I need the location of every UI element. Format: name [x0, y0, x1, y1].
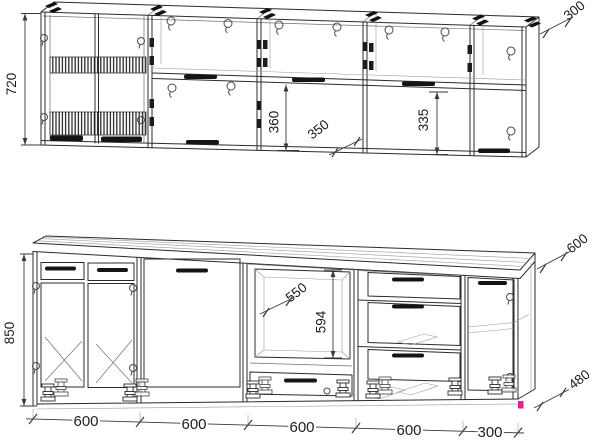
end-side-panel — [518, 262, 535, 400]
base-cabinets-drawing: 850 594 550 600 480 600 600 600 600 300 — [2, 231, 593, 441]
hinge-icons — [263, 40, 367, 69]
hinge-hole-icons — [507, 47, 515, 141]
dim-label-480: 480 — [566, 367, 593, 393]
flap-handle — [184, 75, 217, 80]
base-cabinet-2 — [144, 259, 240, 387]
base-cabinet-1 — [33, 263, 137, 388]
technical-drawing-canvas: 720 360 335 350 300 — [0, 0, 600, 447]
dim-label-upper-depth: 300 — [561, 0, 588, 23]
dim-label-base-height: 850 — [2, 322, 17, 345]
drawer-handle — [392, 354, 424, 358]
dim-label-350: 350 — [305, 117, 332, 143]
base-dimensions: 850 594 550 600 480 600 600 600 600 300 — [2, 231, 593, 441]
dim-label-width-3: 600 — [289, 419, 314, 436]
upper-cabinet-end — [478, 47, 515, 153]
dim-label-335: 335 — [416, 109, 431, 132]
flap-handle — [186, 140, 219, 145]
hinge-hole-icons — [507, 294, 514, 385]
drawer-handle — [284, 379, 317, 383]
dish-rack-lower — [50, 112, 146, 135]
drawer-handle — [97, 268, 128, 272]
upper-cabinets-drawing: 720 360 335 350 300 — [4, 0, 588, 157]
dim-label-upper-height: 720 — [4, 73, 19, 96]
base-cabinet-drawers — [358, 271, 461, 400]
door-handle — [478, 149, 510, 154]
upper-cabinet-c — [263, 21, 367, 82]
hinge-icons — [369, 43, 472, 72]
upper-cabinet-d — [369, 26, 472, 86]
drip-tray — [101, 137, 142, 143]
base-cabinet-end — [468, 278, 529, 409]
flap-handle — [292, 78, 325, 83]
drawer-handle — [392, 278, 424, 282]
dim-label-niche-height: 594 — [314, 310, 329, 333]
flap-handle — [402, 82, 435, 87]
selection-marker — [518, 401, 524, 409]
dim-label-width-5: 300 — [477, 424, 502, 441]
dim-label-width-2: 600 — [181, 416, 206, 433]
kitchen-cad-drawing: 720 360 335 350 300 — [0, 0, 600, 447]
drawer-handle — [392, 305, 424, 309]
dim-label-width-4: 600 — [396, 422, 421, 439]
hinge-icons — [150, 38, 262, 128]
drawer-handle — [45, 267, 76, 271]
drip-tray — [50, 136, 83, 142]
door-handle — [176, 269, 208, 273]
hook-icons — [385, 26, 449, 42]
countertop — [33, 236, 535, 279]
dim-label-width-1: 600 — [73, 413, 98, 430]
upper-cabinet-b — [150, 17, 262, 145]
hook-icons — [167, 17, 235, 98]
door-handle — [478, 281, 507, 285]
dish-rack-upper — [50, 57, 146, 73]
upper-cabinet-dish-rack — [41, 14, 147, 144]
dim-label-360: 360 — [267, 111, 282, 134]
